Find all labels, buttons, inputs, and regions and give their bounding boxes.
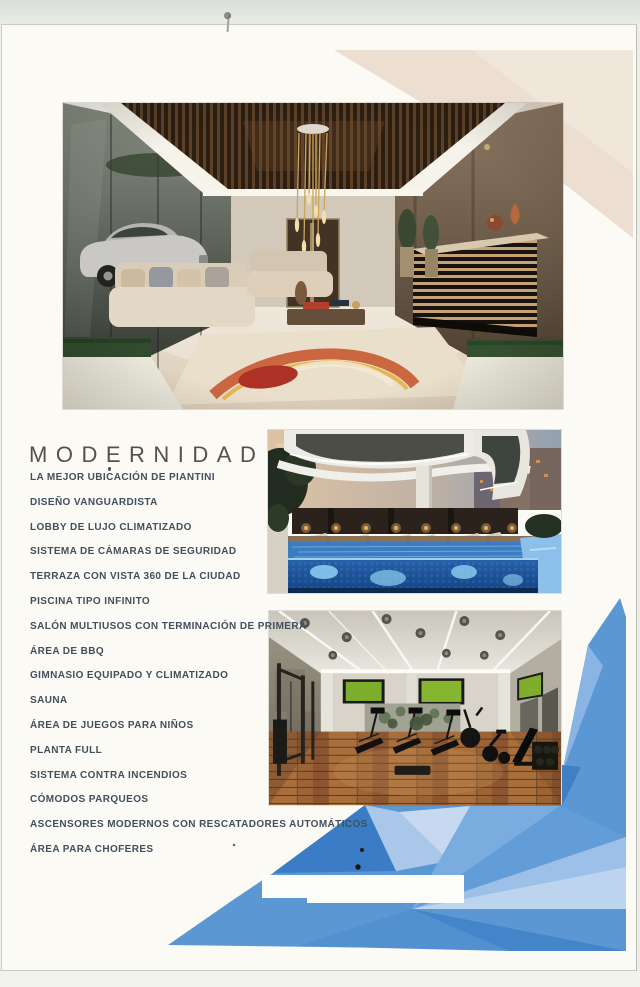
scanner-background-bottom bbox=[0, 970, 640, 987]
amenity-item: SALÓN MULTIUSOS CON TERMINACIÓN DE PRIME… bbox=[30, 615, 450, 640]
amenities-list: LA MEJOR UBICACIÓN DE PIANTINI DISEÑO VA… bbox=[30, 466, 450, 863]
amenity-item: ÁREA PARA CHOFERES bbox=[30, 838, 450, 863]
dumbbell-rack bbox=[532, 742, 559, 770]
amenity-item: SISTEMA CONTRA INCENDIOS bbox=[30, 764, 450, 789]
lobby-photo bbox=[63, 103, 563, 409]
amenity-item: DISEÑO VANGUARDISTA bbox=[30, 491, 450, 516]
amenity-item: CÓMODOS PARQUEOS bbox=[30, 788, 450, 813]
push-pin-tail bbox=[227, 19, 230, 32]
amenity-item: LA MEJOR UBICACIÓN DE PIANTINI bbox=[30, 466, 450, 491]
scanner-background-right bbox=[636, 25, 640, 971]
ink-speck bbox=[355, 864, 360, 869]
amenity-item: SAUNA bbox=[30, 689, 450, 714]
bush bbox=[525, 514, 561, 538]
amenity-item: ÁREA DE BBQ bbox=[30, 640, 450, 665]
amenity-item: PLANTA FULL bbox=[30, 739, 450, 764]
amenity-item: GIMNASIO EQUIPADO Y CLIMATIZADO bbox=[30, 664, 450, 689]
amenity-item: SISTEMA DE CÁMARAS DE SEGURIDAD bbox=[30, 540, 450, 565]
amenity-item: PISCINA TIPO INFINITO bbox=[30, 590, 450, 615]
push-pin-mark bbox=[222, 12, 234, 36]
push-pin-head bbox=[224, 12, 231, 19]
amenity-item: ASCENSORES MODERNOS CON RESCATADORES AUT… bbox=[30, 813, 450, 838]
amenity-item: ÁREA DE JUEGOS PARA NIÑOS bbox=[30, 714, 450, 739]
lobby-photo-illustration bbox=[63, 103, 563, 409]
amenity-item: TERRAZA CON VISTA 360 DE LA CIUDAD bbox=[30, 565, 450, 590]
white-bar-overlay bbox=[262, 875, 464, 898]
amenity-item: LOBBY DE LUJO CLIMATIZADO bbox=[30, 516, 450, 541]
scanned-brochure: MODERNIDAD LA MEJOR UBICACIÓN DE PIANTIN… bbox=[0, 0, 640, 987]
brochure-page: MODERNIDAD LA MEJOR UBICACIÓN DE PIANTIN… bbox=[2, 25, 636, 970]
scanner-background-top bbox=[0, 0, 640, 25]
